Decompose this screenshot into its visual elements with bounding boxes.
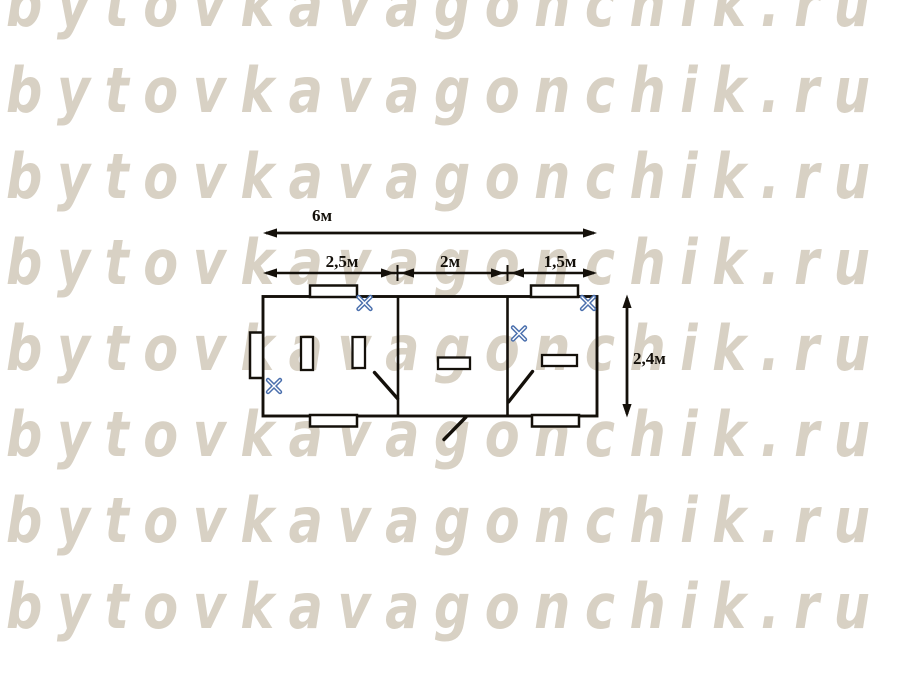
x-cross-vent-icon [359,297,371,309]
dimension-height [622,295,631,418]
x-cross-vent-icon [513,328,525,340]
window-top-room3 [531,286,578,298]
arrowhead-right-icon [491,268,505,277]
furniture-locker-room1-right [353,337,366,368]
dimension-label-room3-width: 1,5м [544,252,577,271]
dimension-label-total-width: 6м [312,206,333,225]
x-cross-vent-icon [268,380,280,392]
dimension-total-width [263,228,597,237]
door-leaf-room3 [509,372,533,403]
arrowhead-up-icon [622,295,631,309]
dimension-label-room1-width: 2,5м [326,252,359,271]
arrowhead-left-icon [401,268,415,277]
furniture-locker-room1-left [301,337,313,370]
arrowhead-right-icon [381,268,395,277]
window-top-room1 [310,286,357,298]
door-leaf-entrance [444,417,466,440]
arrowhead-right-icon [583,228,597,237]
dimension-label-room2-width: 2м [440,252,461,271]
window-left-end [250,333,263,379]
floor-plan-drawing: 6м 2,5м 2м 1,5м 2,4м [0,0,900,675]
arrowhead-left-icon [511,268,525,277]
vent-markers [268,297,594,392]
window-bottom-room1 [310,415,357,427]
arrowhead-right-icon [583,268,597,277]
furniture-table-room3 [542,355,577,366]
door-leaf-room1 [375,373,398,399]
arrowhead-down-icon [622,404,631,418]
furniture-table-room2 [438,358,470,370]
arrowhead-left-icon [263,228,277,237]
arrowhead-left-icon [263,268,277,277]
dimension-label-height: 2,4м [633,349,666,368]
x-cross-vent-icon [582,297,594,309]
window-bottom-room3 [532,415,579,427]
